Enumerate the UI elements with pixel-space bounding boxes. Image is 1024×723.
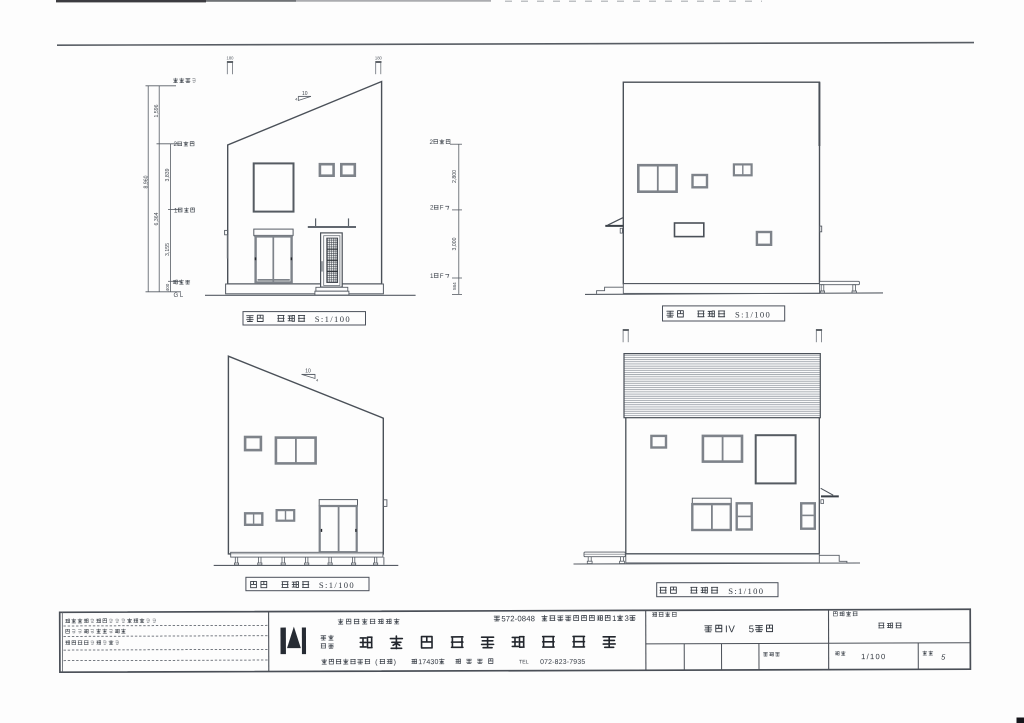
svg-text:2: 2 [174, 141, 178, 148]
svg-text:1/100: 1/100 [861, 652, 887, 661]
svg-text:2,800: 2,800 [452, 170, 458, 183]
svg-text:584: 584 [452, 282, 457, 290]
svg-text:1,596: 1,596 [154, 104, 160, 117]
svg-text:F: F [440, 205, 444, 212]
svg-text:2: 2 [430, 205, 434, 212]
svg-text:1: 1 [174, 207, 178, 214]
svg-text:6,364: 6,364 [154, 212, 160, 225]
svg-text:S:1/100: S:1/100 [319, 580, 355, 590]
svg-text:8,960: 8,960 [144, 175, 150, 188]
svg-text:F: F [440, 273, 444, 280]
svg-text:3,155: 3,155 [165, 243, 171, 256]
svg-text:1: 1 [430, 273, 434, 280]
svg-text:2: 2 [430, 139, 434, 146]
svg-text:10: 10 [305, 368, 311, 374]
svg-text:G L: G L [174, 293, 184, 299]
svg-text:IV: IV [725, 624, 736, 635]
svg-text:180: 180 [375, 55, 383, 60]
svg-text:5: 5 [749, 624, 755, 635]
svg-text:): ) [394, 658, 396, 666]
svg-text:17430: 17430 [418, 658, 438, 666]
svg-text:S:1/100: S:1/100 [735, 310, 771, 320]
svg-text:3,839: 3,839 [165, 168, 171, 181]
svg-text:572-0848: 572-0848 [501, 614, 535, 623]
svg-text:3,000: 3,000 [452, 237, 458, 250]
svg-text:1: 1 [612, 614, 616, 623]
svg-text:S:1/100: S:1/100 [315, 314, 351, 324]
svg-text:3: 3 [625, 614, 629, 623]
svg-text:TEL: TEL [519, 659, 529, 665]
svg-text:072-823-7935: 072-823-7935 [540, 659, 585, 666]
svg-text:400: 400 [165, 283, 170, 291]
svg-text:180: 180 [227, 55, 235, 60]
svg-text:S:1/100: S:1/100 [728, 586, 764, 596]
